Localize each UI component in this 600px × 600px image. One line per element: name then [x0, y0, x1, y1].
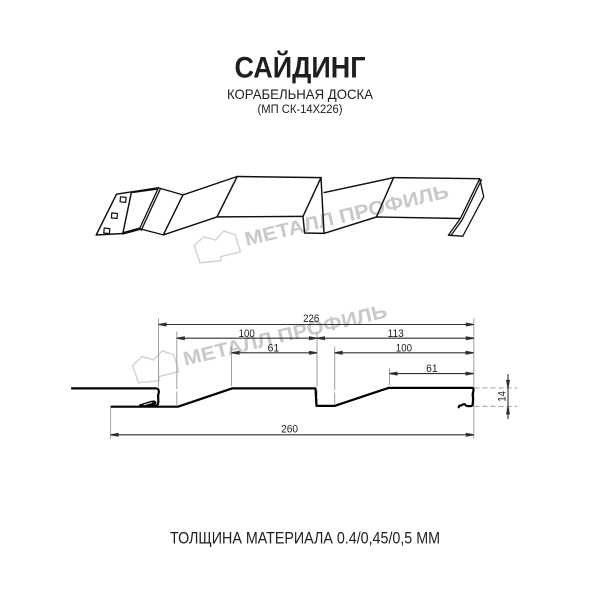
svg-text:(МП СК-14Х226): (МП СК-14Х226)	[258, 104, 343, 116]
svg-text:61: 61	[268, 342, 280, 354]
svg-text:100: 100	[239, 328, 255, 340]
svg-text:113: 113	[388, 328, 404, 340]
svg-text:260: 260	[281, 423, 298, 435]
svg-text:14: 14	[496, 391, 508, 402]
svg-text:226: 226	[303, 313, 319, 325]
svg-text:61: 61	[426, 363, 438, 375]
svg-text:САЙДИНГ: САЙДИНГ	[235, 51, 366, 85]
svg-text:100: 100	[396, 342, 412, 354]
svg-text:КОРАБЕЛЬНАЯ ДОСКА: КОРАБЕЛЬНАЯ ДОСКА	[227, 86, 374, 102]
svg-text:ТОЛЩИНА МАТЕРИАЛА 0.4/0,45/0,5: ТОЛЩИНА МАТЕРИАЛА 0.4/0,45/0,5 ММ	[170, 530, 440, 548]
